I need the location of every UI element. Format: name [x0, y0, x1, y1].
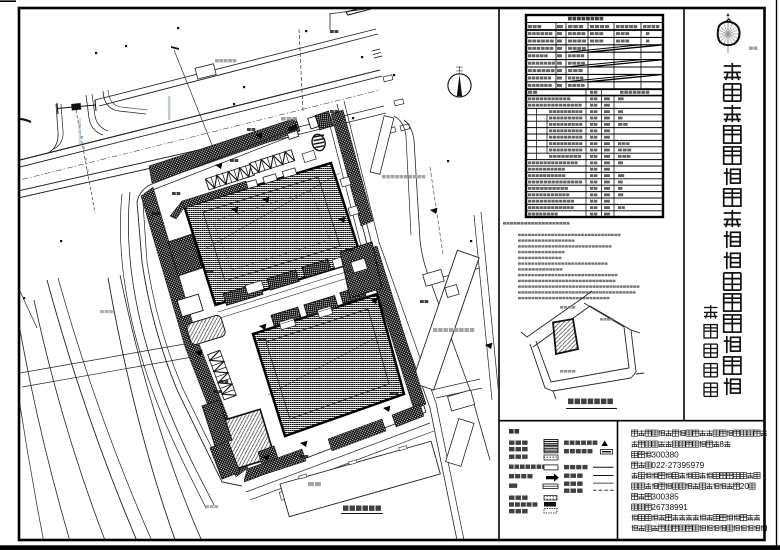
svg-text:300385: 300385	[651, 493, 679, 502]
svg-text:300380: 300380	[651, 451, 679, 460]
svg-text:022-27395979: 022-27395979	[651, 461, 704, 470]
svg-text:20: 20	[740, 482, 750, 491]
svg-text:26738991: 26738991	[651, 503, 688, 512]
svg-text:8: 8	[719, 440, 724, 449]
